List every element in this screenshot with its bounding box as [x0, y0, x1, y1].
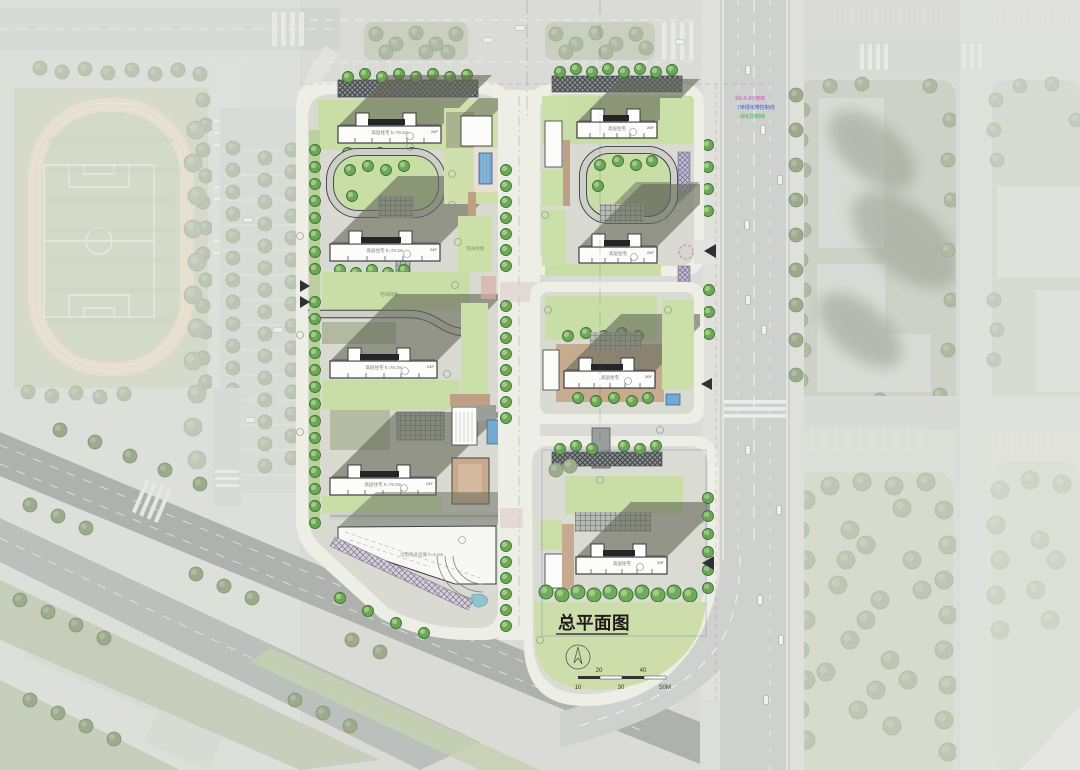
svg-text:高层住宅 h=79.3m: 高层住宅 h=79.3m — [365, 481, 402, 488]
svg-text:24F: 24F — [426, 481, 433, 486]
svg-text:总平面图: 总平面图 — [558, 613, 630, 633]
svg-text:高层住宅: 高层住宅 — [609, 250, 627, 257]
svg-text:XX-X-XX地块: XX-X-XX地块 — [735, 95, 765, 102]
svg-text:高层住宅 h=79.3m: 高层住宅 h=79.3m — [367, 247, 404, 254]
svg-text:高层住宅: 高层住宅 — [608, 125, 626, 132]
svg-text:40: 40 — [640, 668, 647, 674]
svg-text:33F: 33F — [657, 560, 664, 565]
svg-text:26F: 26F — [647, 125, 654, 130]
svg-text:24F: 24F — [427, 364, 434, 369]
svg-text:高层住宅: 高层住宅 — [601, 374, 619, 381]
svg-text:30F: 30F — [645, 374, 652, 379]
svg-text:高层住宅 h=79.3m: 高层住宅 h=79.3m — [372, 129, 409, 136]
svg-text:30: 30 — [618, 685, 625, 691]
svg-text:高层住宅 h=79.3m: 高层住宅 h=79.3m — [366, 364, 403, 371]
svg-text:24F: 24F — [431, 129, 438, 134]
svg-text:24F: 24F — [430, 247, 437, 252]
svg-text:宅间绿地: 宅间绿地 — [380, 291, 398, 298]
svg-text:高层住宅: 高层住宅 — [613, 560, 631, 567]
svg-text:7米绿化带控制线: 7米绿化带控制线 — [737, 104, 775, 111]
svg-text:宅间绿地: 宅间绿地 — [466, 245, 484, 252]
svg-text:10: 10 — [575, 685, 582, 691]
svg-text:20: 20 — [596, 668, 603, 674]
svg-text:绿化控制线: 绿化控制线 — [740, 113, 765, 120]
svg-text:50M: 50M — [659, 685, 671, 691]
svg-text:26F: 26F — [647, 250, 654, 255]
